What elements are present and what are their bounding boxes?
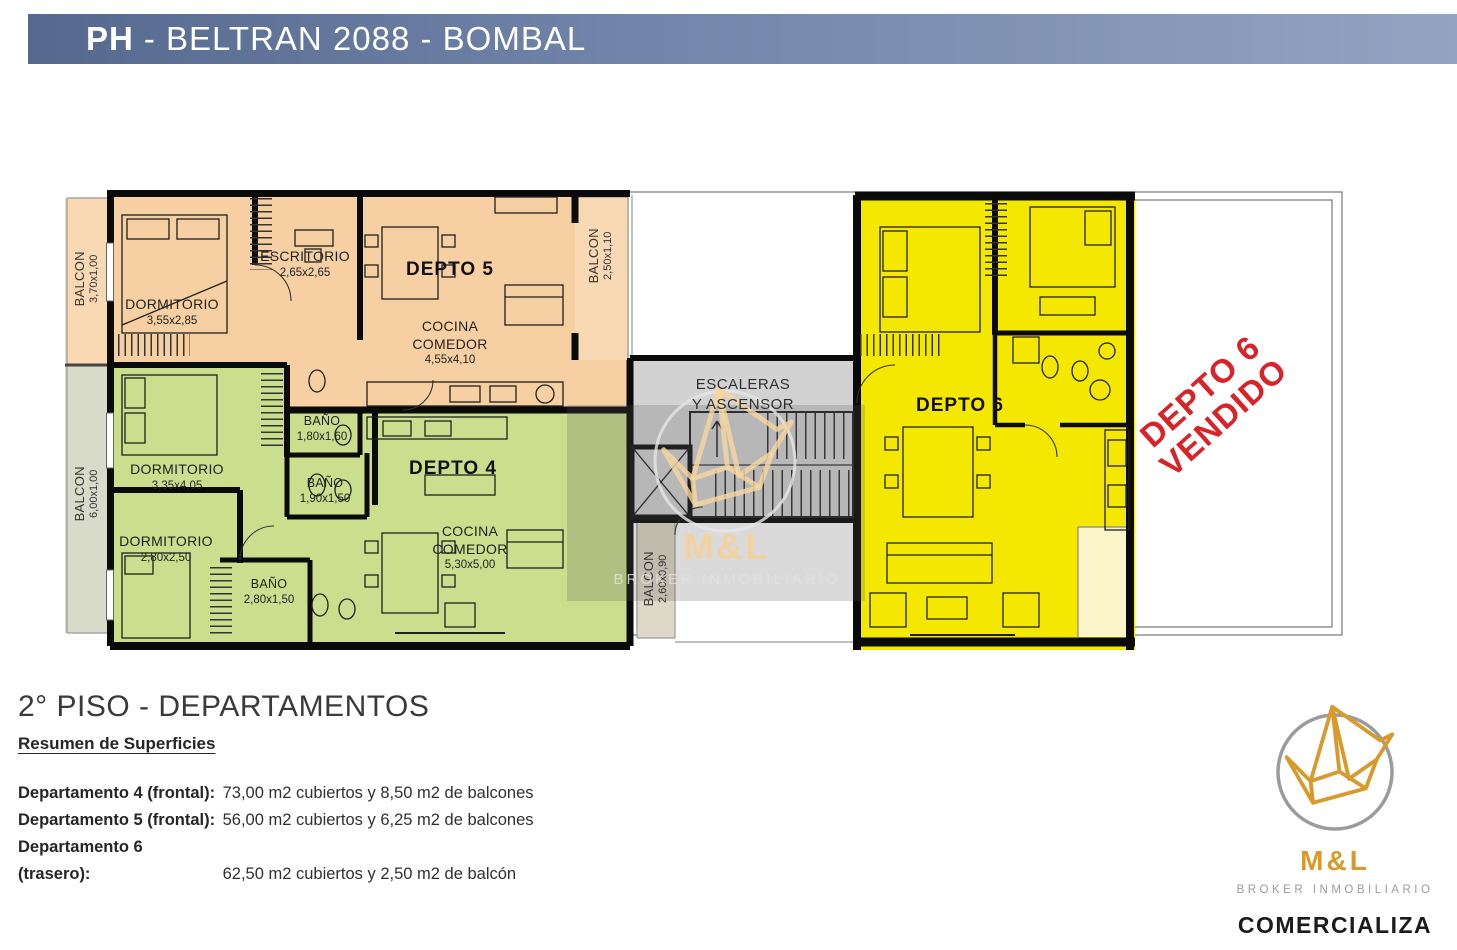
flyer-page: { "header": { "brand": "PH", "rest": "- … xyxy=(0,0,1457,950)
room-label-cocina-d4: COCINA COMEDOR 5,30x5,00 xyxy=(400,523,540,572)
broker-tagline: COMERCIALIZA xyxy=(1235,912,1435,939)
page-title: 2° PISO - DEPARTAMENTOS xyxy=(18,690,534,724)
summary-subtitle: Resumen de Superficies xyxy=(18,734,534,754)
unit-label-depto5: DEPTO 5 xyxy=(380,258,520,282)
unit-label-depto6: DEPTO 6 xyxy=(890,394,1030,418)
surface-rows: Departamento 4 (frontal): 73,00 m2 cubie… xyxy=(18,780,534,888)
watermark-brand: M&L xyxy=(657,526,797,568)
room-label-bano2-d4: BAÑO 2,80x1,50 xyxy=(199,577,339,607)
room-label-escritorio-d5: ESCRITORIO 2,65x2,65 xyxy=(235,248,375,280)
surface-summary: 2° PISO - DEPARTAMENTOS Resumen de Super… xyxy=(18,690,534,888)
broker-subtitle: BROKER INMOBILIARIO xyxy=(1235,884,1435,896)
title-bar: PH - BELTRAN 2088 - BOMBAL xyxy=(28,14,1457,64)
room-label-dormitorio2-d4: DORMITORIO 2,80x2,50 xyxy=(96,533,236,565)
unit-label-depto4: DEPTO 4 xyxy=(383,457,523,481)
title-brand: PH xyxy=(86,20,134,58)
origami-bird-icon xyxy=(1235,692,1435,842)
watermark-subtitle: BROKER INMOBILIARIO xyxy=(597,571,857,588)
room-label-dormitorio1-d4: DORMITORIO 3,35x4,05 xyxy=(107,461,247,493)
floor-plan: BALCON 3,70x1,00 BALCON 6,00x1,00 BALCON… xyxy=(65,185,1420,658)
room-label-bano-d5: BAÑO 1,80x1,60 xyxy=(252,414,392,444)
room-label-cocina-d5: COCINA COMEDOR 4,55x4,10 xyxy=(380,318,520,367)
balcony-label-depto5: BALCON 2,50x1,10 xyxy=(587,191,615,321)
surface-row: Departamento 6 (trasero): 62,50 m2 cubie… xyxy=(18,834,534,888)
surface-row: Departamento 4 (frontal): 73,00 m2 cubie… xyxy=(18,780,534,807)
surface-row: Departamento 5 (frontal): 56,00 m2 cubie… xyxy=(18,807,534,834)
room-label-bano1-d4: BAÑO 1,90x1,50 xyxy=(255,476,395,506)
broker-name: M&L xyxy=(1235,845,1435,877)
balcony-label-left-top: BALCON 3,70x1,00 xyxy=(73,214,101,344)
title-text: - BELTRAN 2088 - BOMBAL xyxy=(144,20,586,58)
broker-logo: M&L BROKER INMOBILIARIO COMERCIALIZA xyxy=(1235,692,1435,939)
stairs-label: ESCALERAS Y ASCENSOR xyxy=(663,375,823,414)
room-label-dormitorio-d5: DORMITORIO 3,55x2,85 xyxy=(102,296,242,328)
